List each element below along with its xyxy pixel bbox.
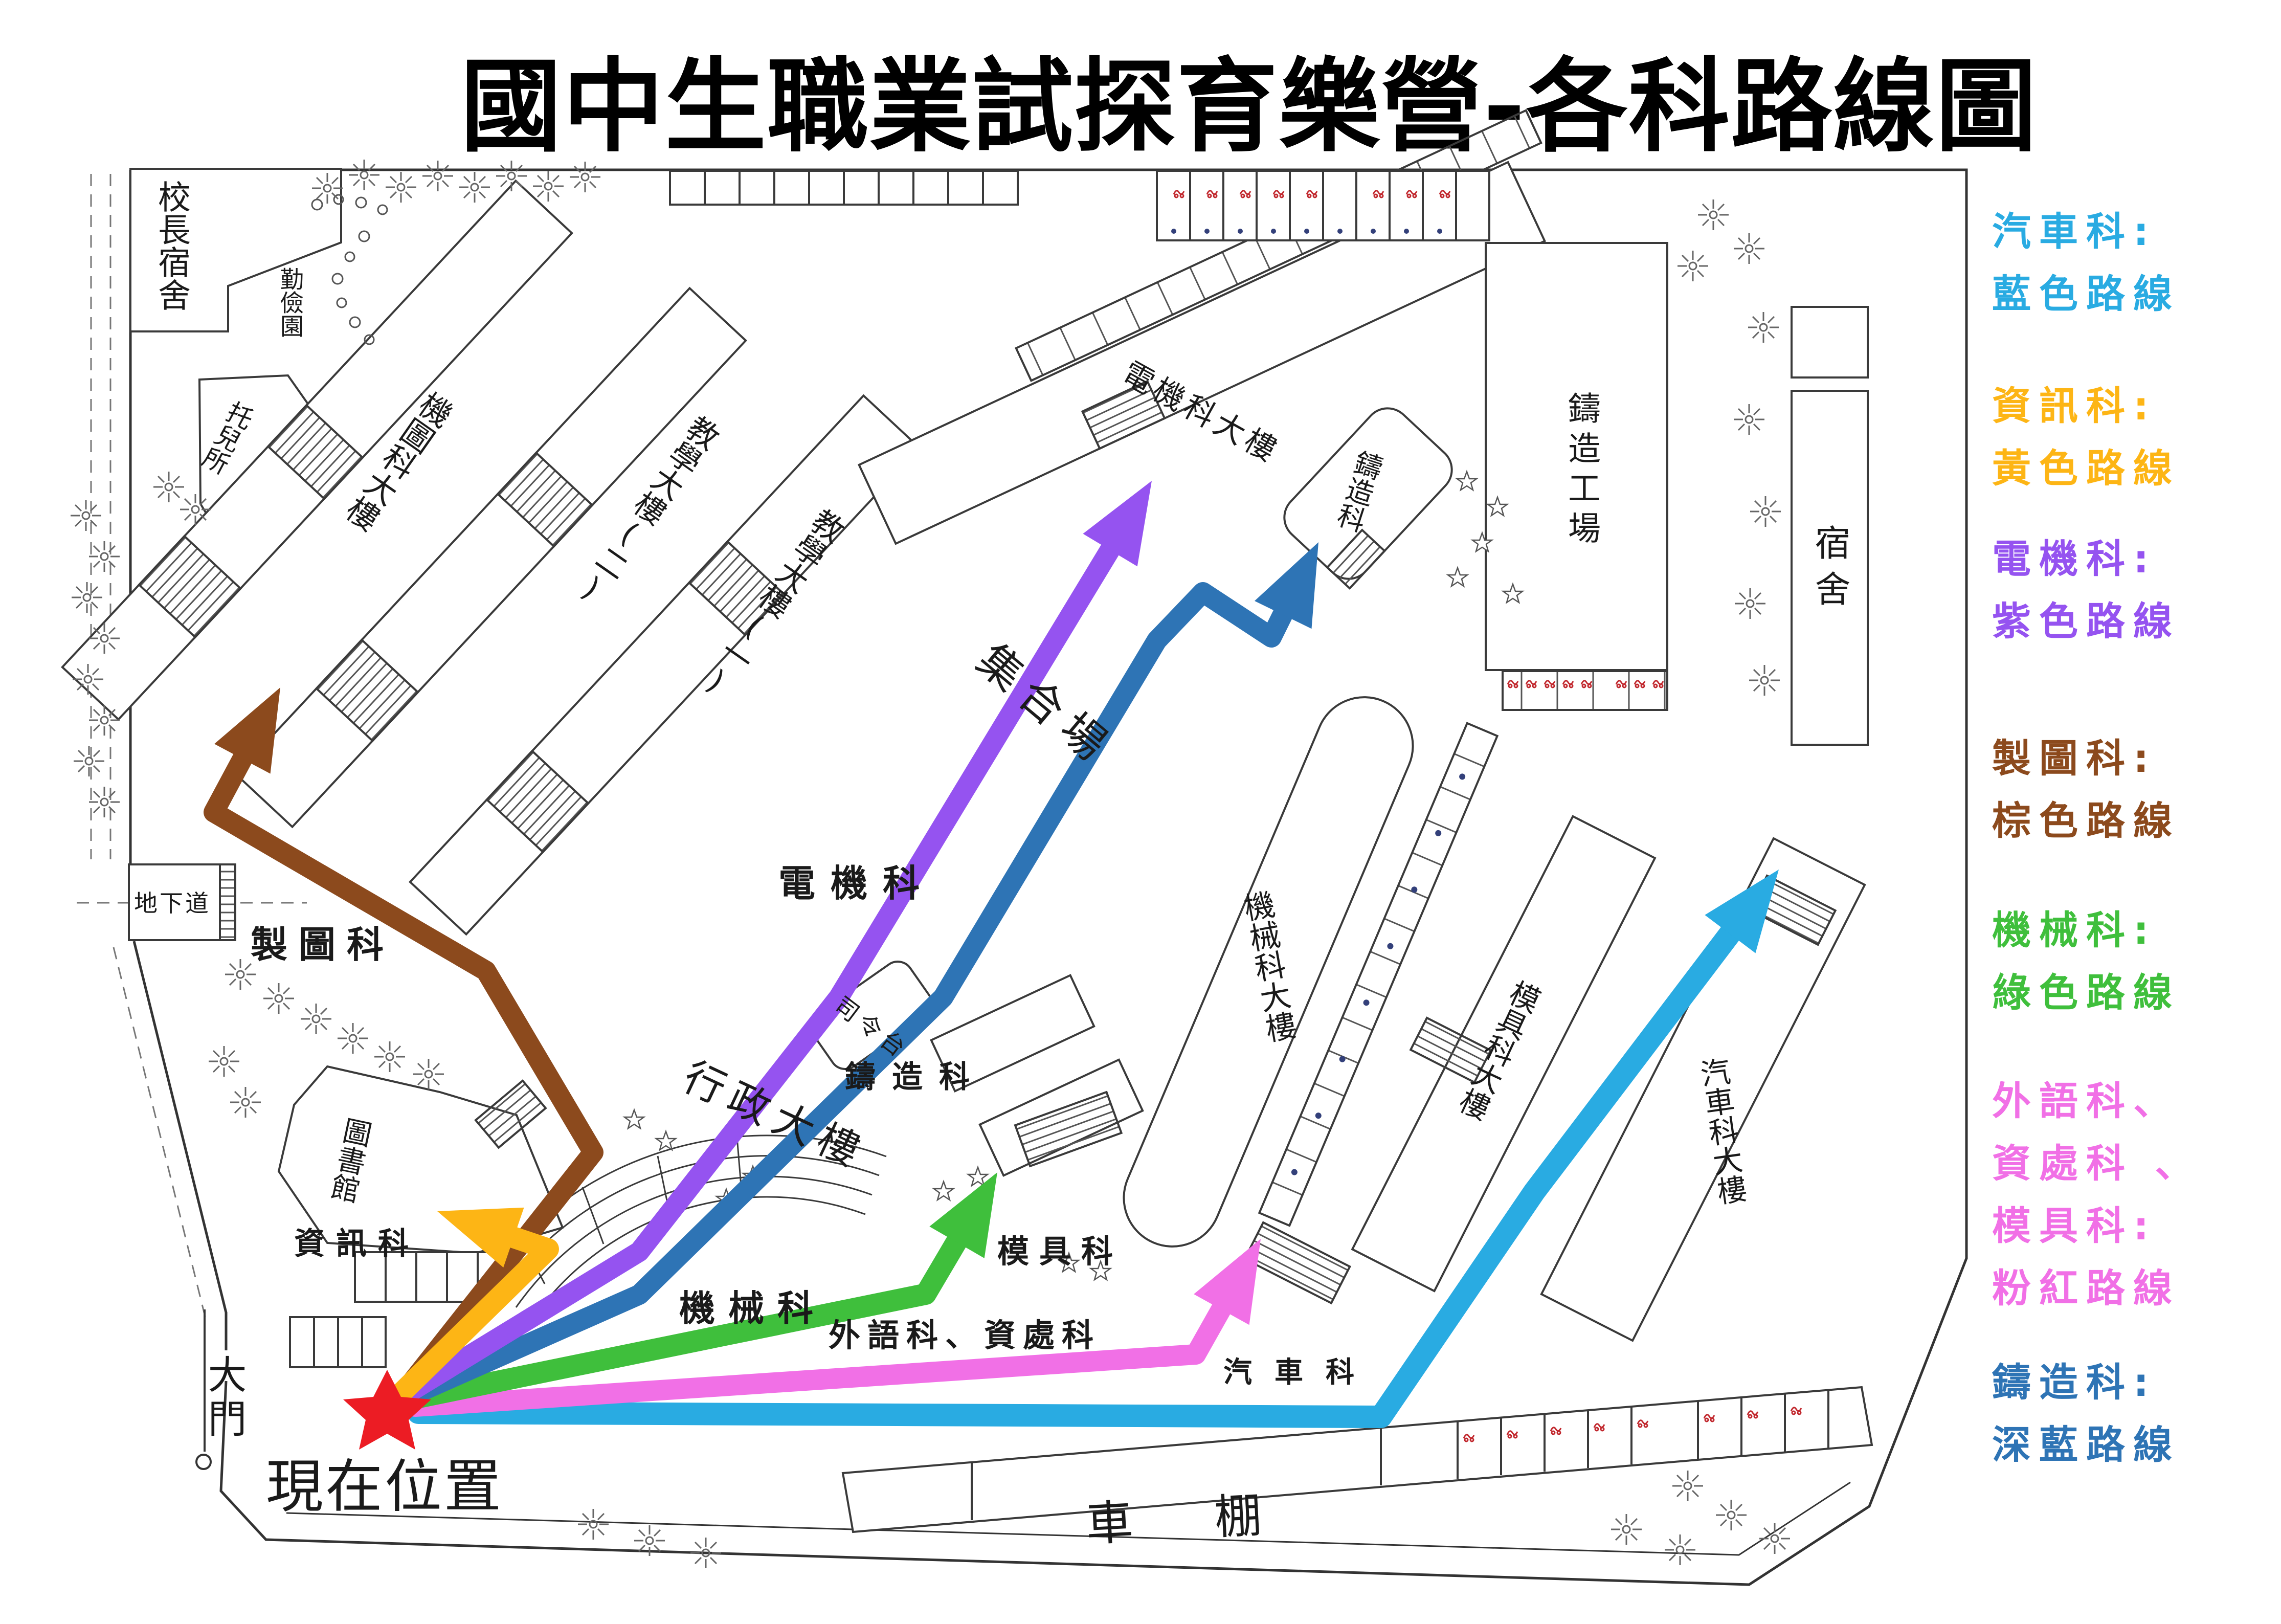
route-label-foreign-dp: 外語科、資處科 (829, 1317, 1101, 1354)
label-qinjian-garden: 勤儉園 (277, 267, 304, 338)
legend-line: 藍色路線 (1992, 263, 2281, 325)
building-dormitory-annex (1792, 307, 1868, 377)
legend-line: 黃色路線 (1992, 437, 2281, 500)
route-label-casting: 鑄造科 (844, 1059, 986, 1095)
leg极end-line: 深藍路線 (1992, 1414, 2281, 1476)
gate-booths (290, 1317, 386, 1367)
legend-line: 棕色路線 (1992, 790, 2281, 852)
route-label-mold: 模具科 (997, 1233, 1123, 1270)
legend-line: 鑄造科: (1992, 1351, 2281, 1414)
legend-line: 紫色路線 (1992, 590, 2281, 653)
label-dormitory: 宿舍 (1809, 524, 1851, 616)
legend-line: 模具科: (1992, 1195, 2281, 1257)
label-principal-dorm: 校長宿舍 (152, 180, 190, 311)
current-location-label: 現在位置 (266, 1454, 503, 1520)
stairs (1245, 1222, 1350, 1303)
label-main-gate: 大門 (202, 1354, 247, 1442)
legend-entry-electric: 電機科: 紫色路線 (1992, 528, 2281, 653)
route-legend: 汽車科: 藍色路線 資訊科: 黃色路線 電機科: 紫色路線 製圖科: 棕色路線 … (1992, 0, 2281, 1624)
building-teaching-2 (236, 288, 746, 827)
parking-row-top-left (670, 171, 1018, 205)
legend-entry-drafting: 製圖科: 棕色路線 (1992, 727, 2281, 852)
route-label-auto: 汽車科 (1223, 1356, 1377, 1389)
route-label-electric: 電機科 (778, 862, 935, 905)
legend-line: 資訊科: (1992, 375, 2281, 437)
label-casting-workshop: 鑄造工場 (1562, 391, 1600, 551)
parking-row-top-right (1157, 171, 1489, 240)
casting-workshop-stalls (1503, 671, 1667, 710)
campus-map: 校長宿舍 勤儉園 托兒所 機圖科大樓 教學大樓(二) 教學大樓(一) 電機科大樓… (0, 0, 2281, 1624)
legend-line: 汽車科: (1992, 201, 2281, 263)
legend-entry-casting: 鑄造科: 深藍路線 (1992, 1351, 2281, 1476)
legend-entry-machine: 機械科: 綠色路線 (1992, 899, 2281, 1024)
legend-entry-info: 資訊科: 黃色路線 (1992, 375, 2281, 500)
legend-line: 資處科 、 (1992, 1132, 2281, 1195)
route-label-drafting: 製圖科 (251, 923, 395, 966)
legend-line: 外語科、 (1992, 1070, 2281, 1132)
campus-route-map-page: 國中生職業試探育樂營-各科路線圖 (0, 0, 2281, 1624)
legend-line: 機械科: (1992, 899, 2281, 962)
legend-line: 電機科: (1992, 528, 2281, 590)
legend-entry-auto: 汽車科: 藍色路線 (1992, 201, 2281, 325)
route-label-machine: 機械科 (679, 1287, 826, 1329)
legend-line: 製圖科: (1992, 727, 2281, 790)
route-label-info: 資訊科 (294, 1226, 420, 1262)
label-underpass: 地下道 (134, 889, 211, 917)
legend-line: 綠色路線 (1992, 962, 2281, 1024)
legend-line: 粉紅路線 (1992, 1257, 2281, 1320)
legend-entry-pink: 外語科、 資處科 、 模具科: 粉紅路線 (1992, 1070, 2281, 1320)
